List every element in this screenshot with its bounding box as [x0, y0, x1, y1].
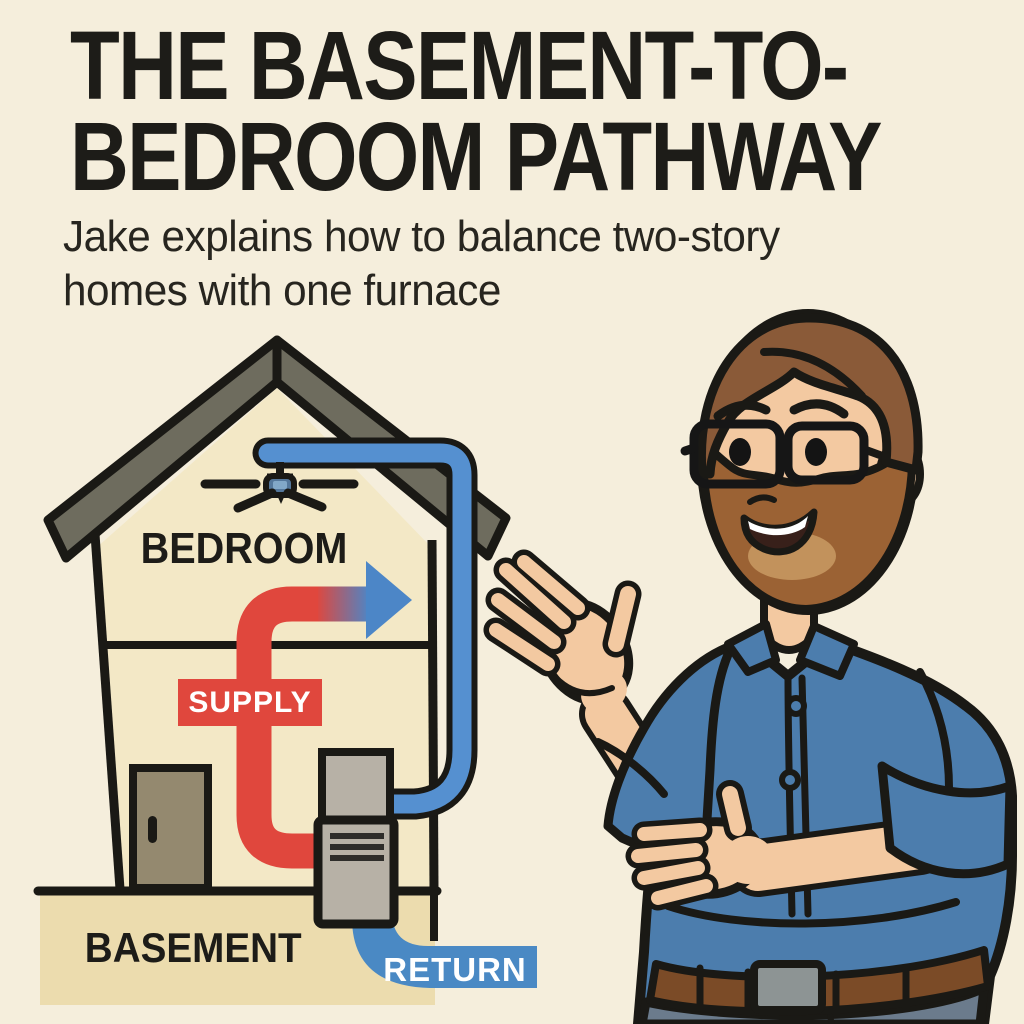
presenter-icon	[496, 314, 1012, 1024]
belt-buckle	[754, 964, 822, 1010]
page-title: THE BASEMENT-TO- BEDROOM PATHWAY	[70, 20, 881, 202]
eye	[805, 438, 827, 466]
subtitle-line-2: homes with one furnace	[63, 264, 780, 318]
shirt-button	[788, 698, 804, 714]
return-badge: RETURN	[380, 949, 530, 991]
left-hand	[496, 562, 646, 722]
furnace-icon	[318, 752, 394, 924]
title-line-2: BEDROOM PATHWAY	[70, 111, 881, 202]
page-subtitle: Jake explains how to balance two-story h…	[63, 210, 780, 318]
house-icon	[38, 340, 537, 1005]
eye	[729, 438, 751, 466]
supply-badge: SUPPLY	[178, 679, 322, 726]
right-wall	[432, 540, 434, 889]
title-line-1: THE BASEMENT-TO-	[70, 20, 881, 111]
subtitle-line-1: Jake explains how to balance two-story	[63, 210, 780, 264]
door-icon	[133, 768, 208, 888]
bedroom-label: BEDROOM	[136, 524, 352, 574]
basement-label: BASEMENT	[85, 924, 287, 972]
head	[685, 314, 920, 610]
shirt-button	[782, 772, 798, 788]
poster: THE BASEMENT-TO- BEDROOM PATHWAY Jake ex…	[0, 0, 1024, 1024]
